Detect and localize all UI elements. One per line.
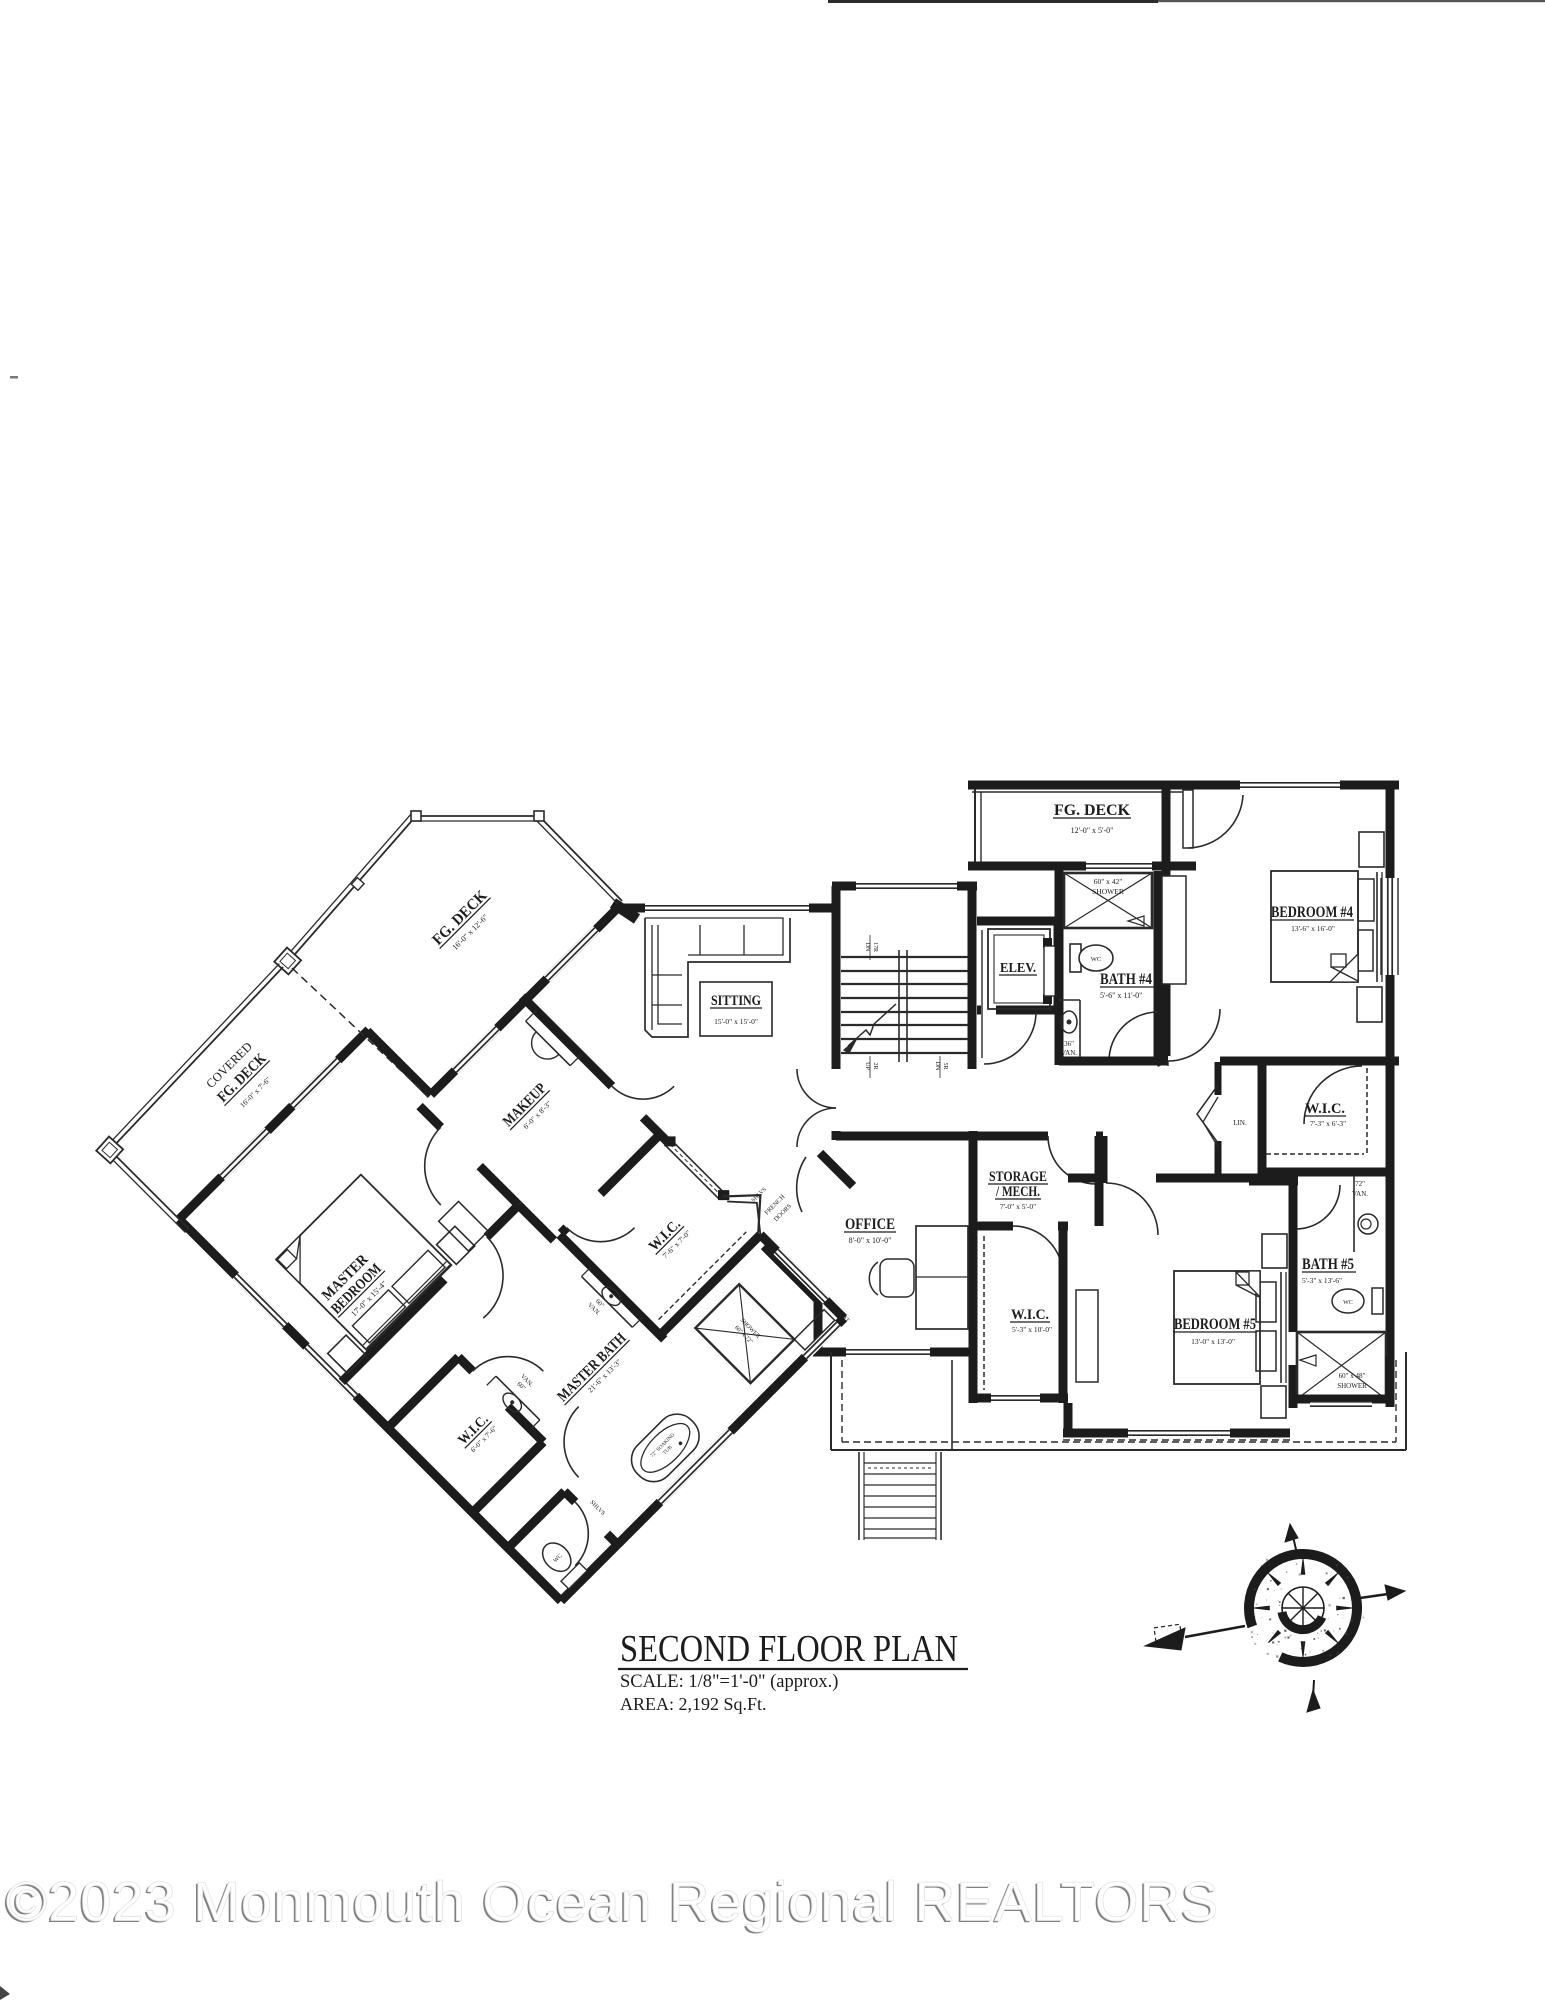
svg-text:BEDROOM #5: BEDROOM #5 xyxy=(1174,1316,1256,1333)
svg-text:7'-3" x 6'-3": 7'-3" x 6'-3" xyxy=(1310,1119,1346,1128)
svg-text:SECOND FLOOR PLAN: SECOND FLOOR PLAN xyxy=(620,1628,958,1670)
svg-text:36": 36" xyxy=(1064,1040,1074,1048)
svg-text:FG. DECK: FG. DECK xyxy=(1054,802,1131,819)
svg-text:WC: WC xyxy=(1091,956,1101,963)
svg-text:BATH #5: BATH #5 xyxy=(1302,1256,1354,1273)
svg-text:SITTING: SITTING xyxy=(711,993,761,1009)
svg-text:ELEV.: ELEV. xyxy=(1000,960,1036,975)
svg-text:VAN.: VAN. xyxy=(1061,1049,1077,1057)
svg-text:WC: WC xyxy=(1343,1300,1353,1306)
svg-text:60" x 42": 60" x 42" xyxy=(1094,877,1123,886)
svg-text:/ MECH.: / MECH. xyxy=(995,1184,1040,1200)
svg-text:SHOWER: SHOWER xyxy=(1337,1382,1367,1390)
svg-text:13'-0" x 13'-0": 13'-0" x 13'-0" xyxy=(1191,1337,1235,1346)
svg-text:DN: DN xyxy=(934,1062,940,1071)
svg-text:BEDROOM #4: BEDROOM #4 xyxy=(1271,904,1353,921)
svg-text:5'-3" x 13'-6": 5'-3" x 13'-6" xyxy=(1302,1276,1342,1285)
svg-text:SHOWER: SHOWER xyxy=(1092,887,1124,896)
svg-text:13'-6" x 16'-0": 13'-6" x 16'-0" xyxy=(1291,924,1335,933)
svg-text:5'-6" x 11'-0": 5'-6" x 11'-0" xyxy=(1100,991,1142,1000)
svg-text:17R: 17R xyxy=(872,942,878,952)
svg-text:©2023 Monmouth Ocean Regional: ©2023 Monmouth Ocean Regional REALTORS xyxy=(6,1870,1219,1933)
svg-text:AREA: 2,192 Sq.Ft.: AREA: 2,192 Sq.Ft. xyxy=(620,1694,767,1714)
svg-text:5R: 5R xyxy=(942,1062,948,1069)
svg-text:SCALE: 1/8"=1'-0" (approx.): SCALE: 1/8"=1'-0" (approx.) xyxy=(620,1672,838,1692)
svg-text:8'-0" x 10'-0": 8'-0" x 10'-0" xyxy=(849,1236,892,1245)
svg-text:72": 72" xyxy=(1355,1180,1365,1188)
svg-text:2R: 2R xyxy=(872,1062,878,1069)
svg-text:W.I.C.: W.I.C. xyxy=(1305,1101,1345,1117)
svg-text:W.I.C.: W.I.C. xyxy=(1011,1307,1049,1323)
svg-text:DN: DN xyxy=(864,943,870,952)
svg-text:7'-0" x 5'-0": 7'-0" x 5'-0" xyxy=(1000,1202,1036,1211)
svg-text:LIN.: LIN. xyxy=(1233,1119,1247,1127)
svg-text:UP: UP xyxy=(864,1062,870,1070)
svg-text:12'-0" x 5'-0": 12'-0" x 5'-0" xyxy=(1071,826,1114,835)
svg-text:STORAGE: STORAGE xyxy=(989,1169,1047,1185)
svg-text:BATH #4: BATH #4 xyxy=(1100,971,1152,988)
svg-text:15'-0" x 15'-0": 15'-0" x 15'-0" xyxy=(714,1017,758,1026)
svg-text:60" x 48": 60" x 48" xyxy=(1339,1372,1366,1380)
svg-text:OFFICE: OFFICE xyxy=(845,1216,895,1233)
svg-text:5'-3" x 10'-0": 5'-3" x 10'-0" xyxy=(1012,1325,1052,1334)
